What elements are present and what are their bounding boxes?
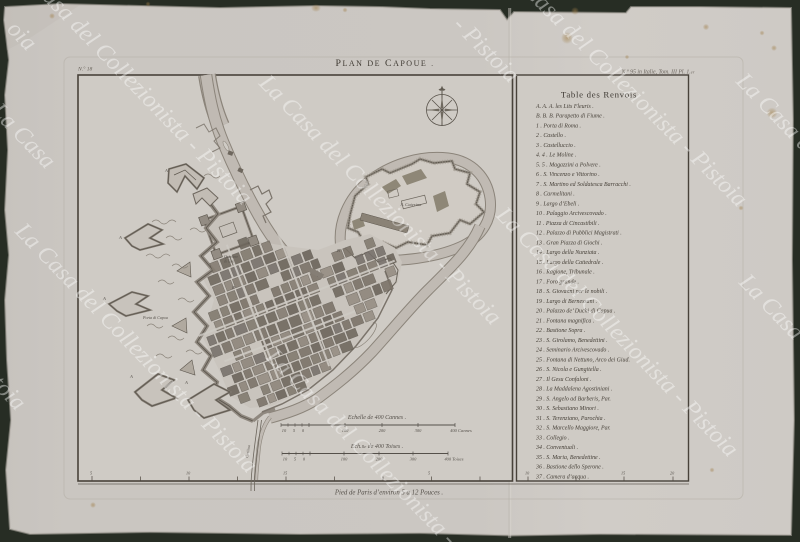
svg-text:Echelle de 400 Cannes .: Echelle de 400 Cannes .: [347, 414, 406, 421]
svg-text:300: 300: [410, 457, 417, 462]
svg-text:B. B. B. Parapetto di Fiume .: B. B. B. Parapetto di Fiume .: [536, 114, 605, 120]
svg-text:A: A: [118, 235, 122, 240]
svg-text:1 . Porta di Roma .: 1 . Porta di Roma .: [536, 123, 581, 129]
svg-text:6 . S. Vincenzo e Vittorino .: 6 . S. Vincenzo e Vittorino .: [536, 172, 600, 178]
svg-text:PLAN DE CAPOUE .: PLAN DE CAPOUE .: [336, 58, 435, 69]
svg-text:5: 5: [428, 471, 430, 476]
svg-text:15: 15: [621, 471, 625, 476]
svg-text:11 . Piazza di Cincastibili .: 11 . Piazza di Cincastibili .: [536, 221, 600, 227]
svg-text:A. A. A. les Lits Fleuris .: A. A. A. les Lits Fleuris .: [535, 104, 594, 110]
svg-text:8 . Carmelitani .: 8 . Carmelitani .: [536, 192, 575, 198]
svg-text:24 . Seminario Arcivescovado .: 24 . Seminario Arcivescovado .: [536, 348, 609, 354]
svg-text:Porta di Capoa: Porta di Capoa: [142, 315, 168, 320]
svg-text:25 . Fontana di Nettuno, Arco: 25 . Fontana di Nettuno, Arco dei Giud.: [536, 357, 630, 363]
svg-text:30 . S. Sebastiano Minori .: 30 . S. Sebastiano Minori .: [535, 406, 599, 412]
svg-text:29 . S. Angelo ad Barberis, Pa: 29 . S. Angelo ad Barberis, Par.: [536, 396, 611, 402]
svg-text:N.° 18: N.° 18: [77, 66, 93, 73]
svg-text:400 Toises: 400 Toises: [444, 457, 463, 462]
svg-text:200: 200: [379, 428, 386, 433]
svg-text:400 Cannes: 400 Cannes: [450, 428, 472, 433]
svg-text:A: A: [164, 168, 168, 173]
svg-text:23 . S. Girolamo, Benedettini: 23 . S. Girolamo, Benedettini .: [536, 338, 608, 344]
svg-text:36 . Bastione dello Sperone .: 36 . Bastione dello Sperone .: [535, 465, 604, 471]
svg-text:Quartiere: Quartiere: [224, 255, 238, 259]
svg-text:32 . S. Marcello Maggiore, Par: 32 . S. Marcello Maggiore, Par.: [535, 426, 611, 432]
svg-text:B: B: [337, 248, 340, 253]
svg-text:4. 4 . Le Moline .: 4. 4 . Le Moline .: [536, 153, 576, 159]
svg-text:31 . S. Terenziano, Parochia .: 31 . S. Terenziano, Parochia .: [535, 416, 606, 422]
svg-text:12 . Palazzo di Pubblici Magis: 12 . Palazzo di Pubblici Magistrati .: [536, 231, 622, 237]
svg-text:27 . Il Gesu Confaloni .: 27 . Il Gesu Confaloni .: [536, 376, 591, 383]
svg-text:37 . Camera d’acqua .: 37 . Camera d’acqua .: [535, 474, 589, 480]
svg-text:26 . S. Nicola e Gungitella .: 26 . S. Nicola e Gungitella .: [536, 367, 602, 373]
svg-text:5: 5: [90, 471, 92, 476]
svg-text:3 . Castelluccio .: 3 . Castelluccio .: [535, 143, 576, 149]
svg-text:28 . La Maddalena Agostiniani: 28 . La Maddalena Agostiniani .: [536, 387, 612, 393]
svg-text:9 . Largo d’Ebeli .: 9 . Largo d’Ebeli .: [536, 201, 579, 207]
svg-text:5. 5 . Magazzini a Polvere .: 5. 5 . Magazzini a Polvere .: [536, 162, 601, 168]
svg-text:34 . Conventuali .: 34 . Conventuali .: [535, 445, 578, 451]
svg-text:22 . Bastione Sopra .: 22 . Bastione Sopra .: [536, 328, 585, 334]
svg-text:35 . S. Maria, Benedettine .: 35 . S. Maria, Benedettine .: [535, 455, 601, 461]
svg-text:2 . Castello .: 2 . Castello .: [536, 133, 566, 139]
svg-text:15: 15: [283, 471, 287, 476]
svg-text:7 . S. Martino ed Soldatesca B: 7 . S. Martino ed Soldatesca Barracchi .: [536, 182, 631, 188]
svg-text:100: 100: [341, 457, 348, 462]
svg-text:10 . Palaggio Arcivescovado .: 10 . Palaggio Arcivescovado .: [536, 211, 607, 217]
svg-text:B: B: [232, 285, 235, 290]
svg-text:33 . Collegio .: 33 . Collegio .: [535, 435, 570, 441]
svg-text:A: A: [129, 374, 133, 379]
svg-text:300: 300: [415, 428, 422, 433]
svg-text:di Cav.: di Cav.: [224, 260, 234, 264]
